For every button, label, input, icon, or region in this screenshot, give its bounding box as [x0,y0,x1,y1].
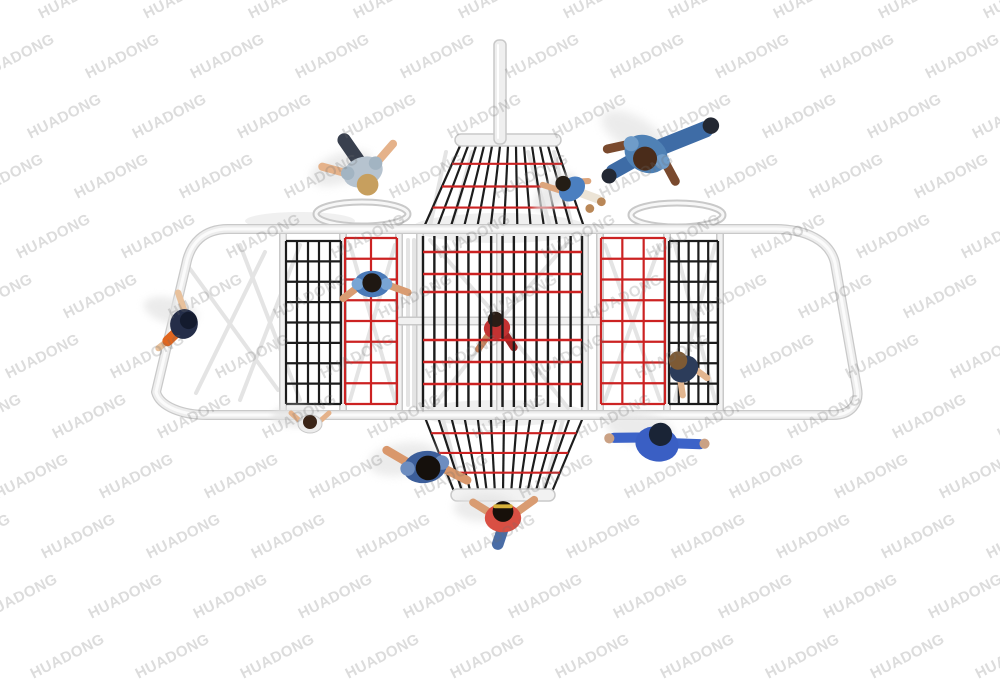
center-tower-net [423,236,582,407]
person-figure-child-white-top [272,405,329,433]
top-funnel-rim-bar [455,134,561,146]
left-black-net [286,241,341,404]
people-layer [134,69,722,544]
product-render-image: HUADONGHUADONGHUADONGHUADONGHUADONGHUADO… [0,0,1000,680]
perimeter-frame [156,40,858,501]
center-mast [494,40,506,144]
playground-structure-render [0,0,1000,680]
person-figure-child-navy-orange-climber [134,285,205,357]
